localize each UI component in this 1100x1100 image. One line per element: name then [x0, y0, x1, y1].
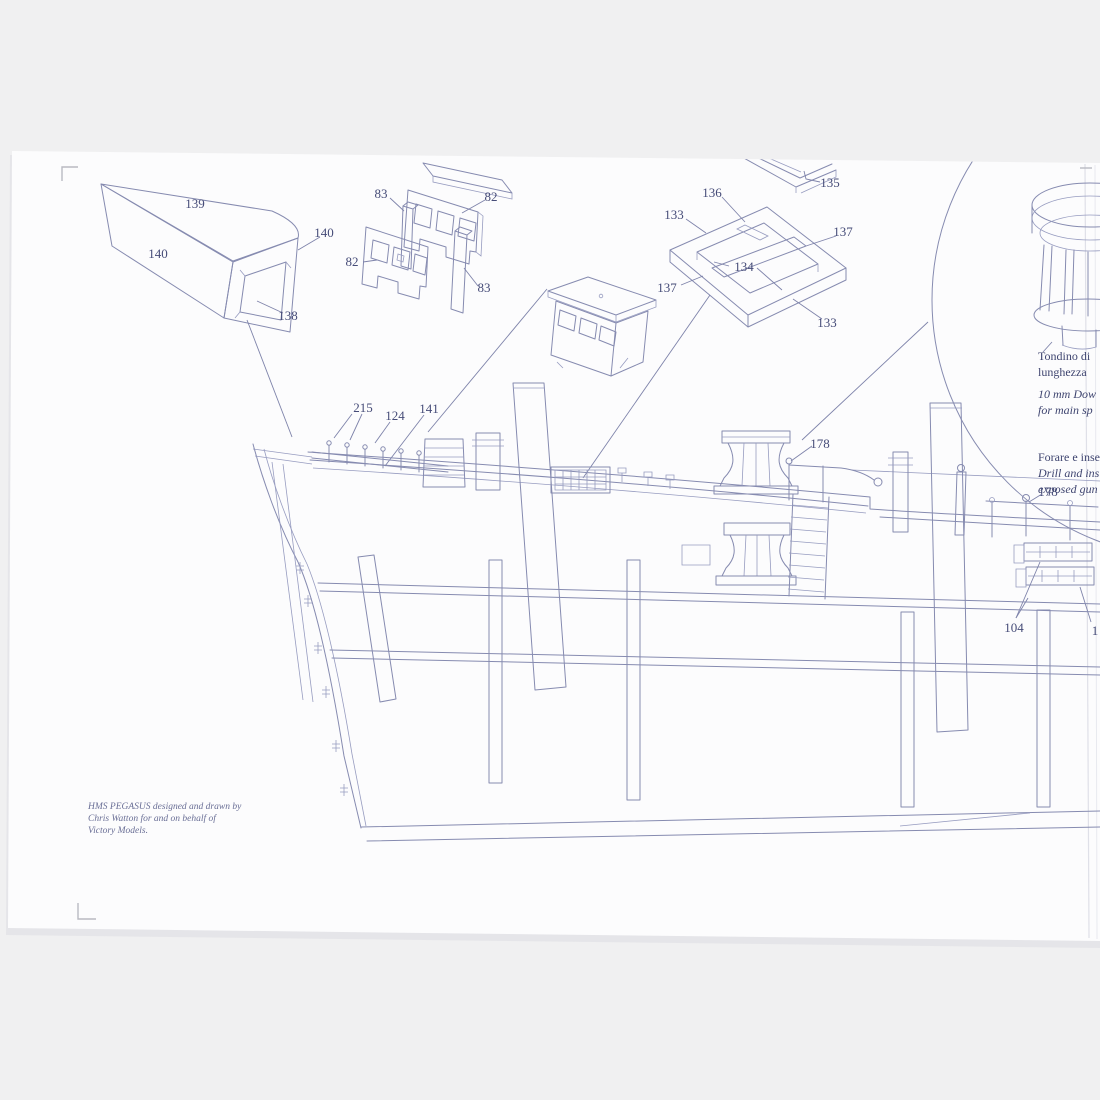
part-label-137-b: 137 [657, 280, 677, 295]
note-line: for main sp [1038, 403, 1093, 417]
note-line: lunghezza [1038, 365, 1087, 379]
note-eyebolt: Forare e inse Drill and ins exposed gun [1037, 450, 1100, 496]
photo-of-plan-sheet: 139 140 140 138 83 82 82 83 136 133 137 … [0, 0, 1100, 1100]
note-line: Tondino di [1038, 349, 1091, 363]
credit-line: Chris Watton for and on behalf of [88, 813, 217, 824]
part-label-141: 141 [419, 401, 439, 416]
credit-line: HMS PEGASUS designed and drawn by [87, 802, 242, 812]
part-label-138: 138 [278, 308, 298, 323]
part-label-135: 135 [820, 175, 840, 190]
part-label-137-a: 137 [833, 224, 853, 239]
part-label-133-b: 133 [817, 315, 837, 330]
part-label-1-partial: 1 [1092, 623, 1099, 638]
part-label-124: 124 [385, 408, 405, 423]
part-label-104: 104 [1004, 620, 1024, 635]
part-label-82-b: 82 [346, 254, 359, 269]
part-label-133-a: 133 [664, 207, 684, 222]
part-label-83-a: 83 [375, 186, 388, 201]
part-label-134: 134 [734, 259, 754, 274]
part-label-215: 215 [353, 400, 373, 415]
part-label-82-a: 82 [485, 189, 498, 204]
part-label-139: 139 [185, 196, 205, 211]
part-label-83-b: 83 [478, 280, 491, 295]
note-line: Forare e inse [1038, 450, 1100, 464]
note-line: Drill and ins [1037, 466, 1100, 480]
part-label-140-a: 140 [148, 246, 168, 261]
part-label-178-a: 178 [810, 436, 830, 451]
paper-sheet [6, 151, 1100, 948]
plan-sheet-svg: 139 140 140 138 83 82 82 83 136 133 137 … [0, 0, 1100, 1100]
note-line: exposed gun [1038, 482, 1098, 496]
note-line: 10 mm Dow [1038, 387, 1096, 401]
part-label-140-b: 140 [314, 225, 334, 240]
credit-line: Victory Models. [88, 826, 148, 836]
part-label-136: 136 [702, 185, 722, 200]
